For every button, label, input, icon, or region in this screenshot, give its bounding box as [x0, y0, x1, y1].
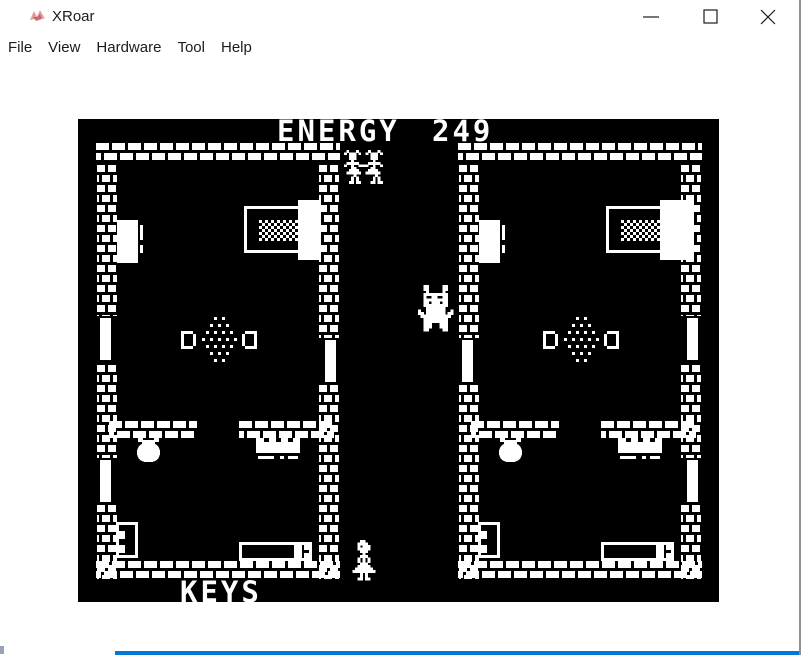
menu-bar: File View Hardware Tool Help [0, 32, 799, 62]
door [96, 458, 118, 504]
minimize-button[interactable] [629, 0, 674, 32]
shelf [618, 438, 662, 459]
wall-bottom-right-room [458, 561, 702, 578]
xroar-dragon-icon [29, 8, 47, 26]
sprite-monster [418, 285, 454, 331]
cauldron [499, 438, 522, 462]
window-title: XRoar [52, 8, 95, 25]
svg-text:KEYS: KEYS [180, 575, 262, 602]
wall-top-right-room [458, 143, 702, 160]
cauldron [137, 438, 160, 462]
seat [242, 331, 257, 349]
hud-energy-value: 249 [432, 119, 493, 148]
rug [564, 317, 599, 362]
door [680, 316, 702, 362]
sprite-girls [344, 150, 383, 184]
svg-text:249: 249 [432, 119, 493, 148]
menu-help[interactable]: Help [221, 39, 252, 56]
shelf [256, 438, 300, 459]
wardrobe [117, 220, 143, 263]
menu-hardware[interactable]: Hardware [96, 39, 161, 56]
seat [181, 331, 196, 349]
menu-tool[interactable]: Tool [177, 39, 205, 56]
wardrobe [479, 220, 505, 263]
emulator-display[interactable]: ENERGY249KEYS [78, 119, 719, 602]
chair [118, 524, 137, 557]
door [318, 338, 340, 384]
wall-inner-left-a [109, 421, 197, 438]
svg-text:ENERGY: ENERGY [277, 119, 400, 148]
door [680, 458, 702, 504]
wall-inner-right-a [471, 421, 559, 438]
xroar-window: XRoar File View Hardware Tool Help ENERG… [0, 0, 801, 655]
wall-left-outer [97, 165, 117, 579]
table [603, 544, 673, 560]
chair [480, 524, 499, 557]
menu-file[interactable]: File [8, 39, 32, 56]
bed [608, 200, 695, 260]
seat [604, 331, 619, 349]
bottom-accent-line [115, 651, 801, 655]
door [96, 316, 118, 362]
bed [246, 200, 322, 260]
seat [543, 331, 558, 349]
door [458, 338, 480, 384]
maximize-button[interactable] [688, 0, 733, 32]
bottom-left-notch [0, 646, 4, 654]
sprite-witch [353, 540, 376, 580]
close-button[interactable] [746, 0, 791, 32]
hud-energy-label: ENERGY [277, 119, 400, 148]
game-screen: ENERGY249KEYS [78, 119, 719, 602]
table [241, 544, 311, 560]
menu-view[interactable]: View [48, 39, 80, 56]
rug [202, 317, 237, 362]
title-bar[interactable]: XRoar [0, 0, 799, 32]
hud-keys-label: KEYS [180, 575, 262, 602]
